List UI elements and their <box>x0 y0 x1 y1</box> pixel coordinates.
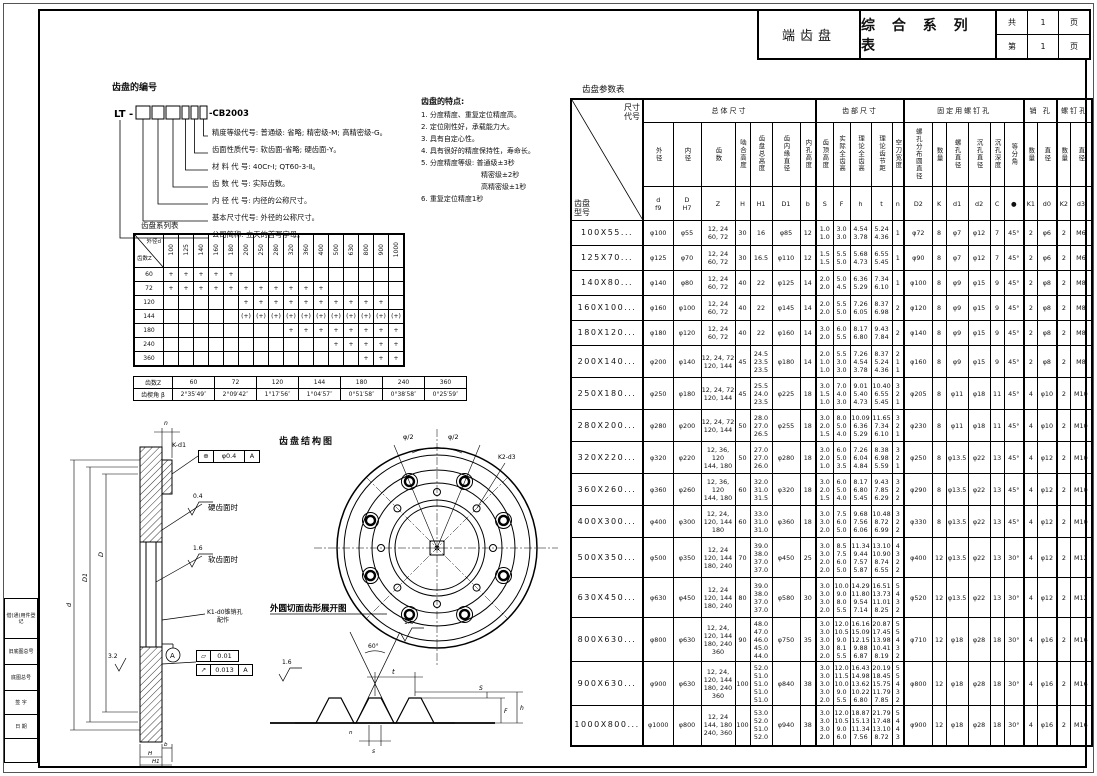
series-mark-cell <box>329 282 344 296</box>
param-value-cell: 3.0 1.5 1.0 <box>816 378 833 410</box>
angle-value-row: 齿楔角 β2°35′49″2°09′42″1°17′56″1°04′57″0°5… <box>134 389 467 401</box>
param-value-cell: 18 <box>800 474 816 506</box>
series-col-header: 125 <box>179 234 194 268</box>
param-value-cell: 2 <box>1057 662 1070 706</box>
param-model-cell: 250X180... <box>571 378 643 410</box>
param-value-cell: φ120 <box>904 296 932 321</box>
angle-col-value: 240 <box>383 377 425 389</box>
param-value-cell: 13 <box>990 578 1004 618</box>
param-value-cell: 16.5 <box>750 246 772 271</box>
param-group-header: 固定用螺钉孔 <box>904 99 1024 123</box>
series-row: 180++++++++ <box>134 324 404 338</box>
feature-line: 2. 定位刚性好，承载能力大。 <box>421 121 573 133</box>
series-row-header: 144 <box>134 310 164 324</box>
param-col-name: 外径 <box>643 123 673 187</box>
screw-hole-inner <box>366 516 375 525</box>
series-col-header: 320 <box>284 234 299 268</box>
param-row: 160X100...φ160φ10012, 24 60, 724022φ1451… <box>571 296 1092 321</box>
param-value-cell: 45° <box>1004 442 1024 474</box>
param-value-cell: 30° <box>1004 538 1024 578</box>
roughness-side-value: 3.2 <box>108 653 118 660</box>
param-value-cell: M16 <box>1070 662 1092 706</box>
param-value-cell: 8 <box>932 271 946 296</box>
hard-face-label: 硬齿面时 <box>208 502 238 512</box>
series-mark-cell <box>269 324 284 338</box>
param-value-cell: 13 <box>990 442 1004 474</box>
param-value-cell: 2 <box>892 321 904 346</box>
param-value-cell: M8 <box>1070 321 1092 346</box>
strip-row: 底图总号 <box>4 665 38 691</box>
flatness-frame: ▱ 0.01 <box>196 650 239 662</box>
series-mark-cell <box>314 268 329 282</box>
series-mark-cell: + <box>269 296 284 310</box>
series-mark-cell <box>299 352 314 367</box>
code-legend-line: 齿 数 代 号: 实际齿数。 <box>212 179 289 189</box>
param-value-cell: 14.29 11.80 9.54 7.14 <box>850 578 871 618</box>
param-group-header: 齿部尺寸 <box>816 99 904 123</box>
param-value-cell: φ180 <box>673 378 701 410</box>
param-value-cell: 2 <box>1057 296 1070 321</box>
param-table-block: 齿盘参数表 尺寸代号齿盘型号总体尺寸齿部尺寸固定用螺钉孔销 孔螺钉孔外径内径齿数… <box>570 83 1087 747</box>
param-value-cell: φ205 <box>904 378 932 410</box>
param-value-cell: 14 <box>800 271 816 296</box>
series-mark-cell: (+) <box>314 310 329 324</box>
param-value-cell: 9 <box>990 271 1004 296</box>
pages-total-row: 共1页 <box>997 11 1089 35</box>
dim-h-label: h <box>520 705 524 712</box>
series-mark-cell: (+) <box>284 310 299 324</box>
param-value-cell: 12, 24 60, 72 <box>701 246 735 271</box>
flatness-symbol: ▱ <box>196 650 211 662</box>
param-col-symbol: d f9 <box>643 187 673 221</box>
param-value-cell: φ8 <box>1037 271 1057 296</box>
series-mark-cell: + <box>194 282 209 296</box>
param-value-cell: 3 2 2 <box>892 474 904 506</box>
series-row: 144(+)(+)(+)(+)(+)(+)(+)(+)(+)(+)(+) <box>134 310 404 324</box>
param-value-cell: 5.24 4.36 <box>871 221 892 246</box>
param-value-cell: 80 <box>735 578 750 618</box>
param-value-cell: 38 <box>800 662 816 706</box>
param-value-cell: φ160 <box>643 296 673 321</box>
code-prefix: LT - <box>114 109 133 120</box>
param-value-cell: 13 <box>990 474 1004 506</box>
param-value-cell: 90 <box>735 618 750 662</box>
screw-hole-inner <box>499 571 508 580</box>
series-mark-cell <box>179 296 194 310</box>
param-value-cell: 1 <box>892 221 904 246</box>
param-value-cell: φ145 <box>772 296 800 321</box>
param-col-symbol: d0 <box>1037 187 1057 221</box>
series-mark-cell <box>164 352 179 367</box>
screw-hole-inner <box>499 516 508 525</box>
param-value-cell: 2 <box>1057 246 1070 271</box>
page-cell: 页 <box>1058 35 1089 58</box>
param-value-cell: 22 <box>750 296 772 321</box>
param-value-cell: 12, 36, 120 144, 180 <box>701 442 735 474</box>
param-row: 140X80...φ140φ8012, 24 60, 724022φ125142… <box>571 271 1092 296</box>
param-row: 250X180...φ250φ18012, 24, 72 120, 144452… <box>571 378 1092 410</box>
param-value-cell: M6 <box>1070 221 1092 246</box>
angle-value-cell: 1°17′56″ <box>257 389 299 401</box>
param-value-cell: 2.0 2.0 <box>816 271 833 296</box>
param-value-cell: 7.26 6.05 <box>850 296 871 321</box>
param-value-cell: 6.0 5.0 3.5 <box>833 442 850 474</box>
param-value-cell: 5.5 3.0 3.0 <box>833 346 850 378</box>
param-value-cell: 13 <box>990 538 1004 578</box>
param-value-cell: φ350 <box>673 538 701 578</box>
param-value-cell: 45° <box>1004 346 1024 378</box>
series-mark-cell <box>344 282 359 296</box>
param-value-cell: φ13.5 <box>946 506 968 538</box>
series-col-header: 800 <box>359 234 374 268</box>
angle-value-cell: 0°38′58″ <box>383 389 425 401</box>
param-row: 900X630...φ900φ63012, 24, 120, 144 180, … <box>571 662 1092 706</box>
param-value-cell: 2 <box>1057 706 1070 746</box>
runout-value: 0.013 <box>211 664 239 676</box>
param-value-cell: 9 <box>990 346 1004 378</box>
series-mark-cell: (+) <box>269 310 284 324</box>
series-mark-cell <box>194 296 209 310</box>
param-value-cell: 12, 24 60, 72 <box>701 296 735 321</box>
series-mark-cell <box>329 268 344 282</box>
param-value-cell: φ330 <box>904 506 932 538</box>
param-value-cell: 1.5 1.5 <box>816 246 833 271</box>
series-mark-cell: (+) <box>389 310 405 324</box>
param-value-cell: 13.10 10.90 8.74 6.55 <box>871 538 892 578</box>
param-value-cell: 8 <box>932 246 946 271</box>
param-value-cell: 12, 24, 120, 144 180 <box>701 506 735 538</box>
param-value-cell: 12.0 10.5 9.0 8.1 5.5 <box>833 618 850 662</box>
runout-symbol: ↗ <box>196 664 211 676</box>
param-value-cell: φ300 <box>673 506 701 538</box>
series-mark-cell <box>209 296 224 310</box>
param-value-cell: 22 <box>750 321 772 346</box>
series-col-header: 180 <box>224 234 239 268</box>
param-value-cell: 16.51 13.73 11.01 8.25 <box>871 578 892 618</box>
series-mark-cell: (+) <box>359 310 374 324</box>
param-value-cell: 4 <box>1024 506 1037 538</box>
param-col-symbol: K2 <box>1057 187 1070 221</box>
param-value-cell: M10 <box>1070 378 1092 410</box>
param-value-cell: φ140 <box>904 321 932 346</box>
param-value-cell: 4 3 2 2 <box>892 538 904 578</box>
param-value-cell: φ13.5 <box>946 442 968 474</box>
series-mark-cell: + <box>284 296 299 310</box>
param-value-cell: 20.19 18.45 15.75 11.79 7.85 <box>871 662 892 706</box>
param-value-cell: φ22 <box>968 474 990 506</box>
angle-col-value: 144 <box>299 377 341 389</box>
datum-a-label: A <box>170 652 175 660</box>
param-col-symbol: ● <box>1004 187 1024 221</box>
param-value-cell: 12 <box>800 221 816 246</box>
param-value-cell: 2 <box>1024 321 1037 346</box>
param-value-cell: 5 5 4 3 2 <box>892 662 904 706</box>
param-value-cell: φ255 <box>772 410 800 442</box>
param-value-cell: 16 <box>750 221 772 246</box>
param-value-cell: φ180 <box>643 321 673 346</box>
page-count-cell: 共1页 第1页 <box>997 11 1089 58</box>
param-value-cell: 30 <box>735 246 750 271</box>
series-mark-cell <box>329 352 344 367</box>
series-mark-cell: + <box>374 352 389 367</box>
param-value-cell: 4 <box>1024 706 1037 746</box>
series-mark-cell: + <box>164 282 179 296</box>
param-value-cell: 10.40 6.55 5.45 <box>871 378 892 410</box>
param-value-cell: φ16 <box>1037 662 1057 706</box>
param-value-cell: 8 <box>932 378 946 410</box>
series-row-header: 240 <box>134 338 164 352</box>
param-value-cell: φ360 <box>772 506 800 538</box>
series-mark-cell <box>314 338 329 352</box>
series-mark-cell: (+) <box>374 310 389 324</box>
param-value-cell: 8.17 6.80 <box>850 321 871 346</box>
param-value-cell: M6 <box>1070 246 1092 271</box>
param-value-cell: φ70 <box>673 246 701 271</box>
series-mark-cell: + <box>344 338 359 352</box>
doc-title: 综 合 系 列 表 <box>861 11 997 58</box>
series-mark-cell: + <box>284 324 299 338</box>
series-mark-cell <box>389 296 405 310</box>
param-value-cell: φ140 <box>673 346 701 378</box>
param-col-name: 数量 <box>932 123 946 187</box>
param-value-cell: 70 <box>735 538 750 578</box>
param-value-cell: 45° <box>1004 271 1024 296</box>
position-tolerance-value: φ0.4 <box>214 450 245 463</box>
param-col-symbol: d1 <box>946 187 968 221</box>
series-mark-cell: + <box>224 268 239 282</box>
param-value-cell: 3 2 1 <box>892 410 904 442</box>
series-mark-cell <box>209 352 224 367</box>
param-value-cell: 12 <box>932 578 946 618</box>
param-value-cell: 18 <box>800 442 816 474</box>
param-value-cell: 22 <box>750 271 772 296</box>
param-value-cell: 18.87 15.13 11.34 7.56 <box>850 706 871 746</box>
param-col-symbol: b <box>800 187 816 221</box>
series-col-header: 100 <box>164 234 179 268</box>
series-mark-cell <box>284 338 299 352</box>
runout-datum-ref: A <box>239 664 253 676</box>
param-value-cell: 8.17 6.80 5.45 <box>850 474 871 506</box>
half-angle-left: φ/2 <box>403 433 414 441</box>
param-value-cell: φ12 <box>1037 474 1057 506</box>
param-value-cell: 100 <box>735 706 750 746</box>
param-value-cell: 9.01 5.40 4.73 <box>850 378 871 410</box>
param-row: 320X220...φ320φ22012, 36, 120 144, 18050… <box>571 442 1092 474</box>
series-row-header: 360 <box>134 352 164 367</box>
series-mark-cell: + <box>329 296 344 310</box>
param-value-cell: φ125 <box>772 271 800 296</box>
series-corner-top: 外径d <box>147 238 162 247</box>
series-mark-cell <box>179 324 194 338</box>
param-col-name: 直径 <box>1070 123 1092 187</box>
page-current-row: 第1页 <box>997 35 1089 58</box>
param-value-cell: 2.0 1.0 1.0 <box>816 346 833 378</box>
series-mark-cell <box>284 268 299 282</box>
param-row: 280X200...φ280φ20012, 24, 72 120, 144502… <box>571 410 1092 442</box>
param-value-cell: φ200 <box>643 346 673 378</box>
angle-header-label: 齿数Z <box>134 377 173 389</box>
param-value-cell: 30 <box>800 578 816 618</box>
series-mark-cell <box>224 324 239 338</box>
angle-col-value: 72 <box>215 377 257 389</box>
series-mark-cell: + <box>359 338 374 352</box>
param-value-cell: 12, 24 60, 72 <box>701 271 735 296</box>
param-value-cell: 40 <box>735 321 750 346</box>
dim-d-label: d <box>65 602 73 607</box>
dim-H1-label: H1 <box>152 759 160 765</box>
param-value-cell: φ8 <box>1037 346 1057 378</box>
param-value-cell: φ85 <box>772 221 800 246</box>
param-value-cell: 2 1 1 <box>892 346 904 378</box>
param-value-cell: 6.0 5.5 <box>833 321 850 346</box>
param-value-cell: 21.79 17.48 13.10 8.72 <box>871 706 892 746</box>
param-value-cell: M12 <box>1070 578 1092 618</box>
flatness-value: 0.01 <box>211 650 239 662</box>
param-value-cell: 8 <box>932 296 946 321</box>
param-value-cell: 18 <box>800 410 816 442</box>
series-mark-cell <box>269 338 284 352</box>
param-value-cell: 12, 24 120, 144 180, 240 <box>701 578 735 618</box>
param-value-cell: φ6 <box>1037 221 1057 246</box>
param-value-cell: φ28 <box>968 662 990 706</box>
angle-col-value: 120 <box>257 377 299 389</box>
param-value-cell: 30° <box>1004 662 1024 706</box>
series-mark-cell <box>209 324 224 338</box>
param-value-cell: φ12 <box>1037 442 1057 474</box>
series-mark-cell: + <box>269 282 284 296</box>
param-value-cell: φ18 <box>946 618 968 662</box>
dim-D-label: D <box>97 552 105 557</box>
param-value-cell: 8.38 6.98 5.59 <box>871 442 892 474</box>
series-row-header: 120 <box>134 296 164 310</box>
param-value-cell: 8.37 6.98 <box>871 296 892 321</box>
param-col-name: 齿顶高度 <box>816 123 833 187</box>
page-cell: 第 <box>997 35 1027 58</box>
param-value-cell: 12, 24, 120, 144 180, 240 360 <box>701 662 735 706</box>
series-mark-cell: + <box>179 282 194 296</box>
margin-strip: 借(通)用件登记旧底图总号底图总号签 字日 期 <box>4 598 38 763</box>
series-mark-cell <box>224 296 239 310</box>
param-value-cell: 40 <box>735 296 750 321</box>
param-value-cell: φ110 <box>772 246 800 271</box>
series-mark-cell <box>224 310 239 324</box>
series-col-header: 630 <box>344 234 359 268</box>
series-mark-cell <box>359 282 374 296</box>
angle-table-block: 齿数Z6072120144180240360齿楔角 β2°35′49″2°09′… <box>133 376 467 401</box>
series-mark-cell: + <box>374 296 389 310</box>
strip-row: 日 期 <box>4 715 38 739</box>
param-value-cell: M12 <box>1070 538 1092 578</box>
param-col-name: 内孔高度 <box>800 123 816 187</box>
dim-s-label: s <box>372 748 375 755</box>
param-value-cell: φ320 <box>643 442 673 474</box>
param-value-cell: 2 <box>1057 578 1070 618</box>
param-value-cell: 4 <box>1024 474 1037 506</box>
features-heading: 齿盘的特点: <box>421 96 573 107</box>
param-value-cell: 7 <box>990 221 1004 246</box>
param-header-symbols: d f9D H7ZHH1D1bSFhtnD2Kd1d2C●K1d0K2d3 <box>571 187 1092 221</box>
param-value-cell: 7 <box>990 246 1004 271</box>
series-col-header: 280 <box>269 234 284 268</box>
param-value-cell: φ12 <box>1037 506 1057 538</box>
param-value-cell: φ360 <box>643 474 673 506</box>
param-value-cell: 12.0 10.5 9.0 6.0 <box>833 706 850 746</box>
series-mark-cell <box>179 352 194 367</box>
param-model-cell: 200X140... <box>571 346 643 378</box>
param-col-symbol: K1 <box>1024 187 1037 221</box>
param-value-cell: 39.0 38.0 37.0 37.0 <box>750 578 772 618</box>
series-row: 120++++++++++ <box>134 296 404 310</box>
series-mark-cell <box>179 310 194 324</box>
k-d1-label: K-d1 <box>172 441 186 449</box>
param-row: 400X300...φ400φ30012, 24, 120, 144 18060… <box>571 506 1092 538</box>
param-value-cell: 13 <box>990 506 1004 538</box>
dim-t-label: t <box>392 668 395 676</box>
develop-view-title: 外圆切面齿形展开图 <box>269 603 347 614</box>
param-col-name: 实际全齿高 <box>833 123 850 187</box>
param-value-cell: M8 <box>1070 296 1092 321</box>
strip-row: 签 字 <box>4 691 38 715</box>
series-corner-bottom: 齿数Z <box>137 255 152 264</box>
series-mark-cell <box>374 282 389 296</box>
screw-hole-note: K2-d3 <box>498 454 516 461</box>
param-col-symbol: C <box>990 187 1004 221</box>
param-value-cell: φ22 <box>968 578 990 618</box>
param-value-cell: 38 <box>800 706 816 746</box>
series-mark-cell: + <box>284 282 299 296</box>
series-mark-cell: + <box>389 352 405 367</box>
angle-col-value: 180 <box>341 377 383 389</box>
param-value-cell: 7.0 4.0 3.0 <box>833 378 850 410</box>
param-value-cell: φ28 <box>968 706 990 746</box>
angle-value-cell: 0°51′58″ <box>341 389 383 401</box>
param-value-cell: φ800 <box>643 618 673 662</box>
series-col-header: 200 <box>239 234 254 268</box>
param-value-cell: φ160 <box>772 321 800 346</box>
param-value-cell: φ22 <box>968 442 990 474</box>
series-col-header: 900 <box>374 234 389 268</box>
param-model-cell: 500X350... <box>571 538 643 578</box>
param-value-cell: φ10 <box>1037 410 1057 442</box>
series-mark-cell: + <box>374 324 389 338</box>
param-value-cell: 14 <box>800 296 816 321</box>
param-row: 630X450...φ630φ45012, 24 120, 144 180, 2… <box>571 578 1092 618</box>
position-datum-ref: A <box>245 450 260 463</box>
dim-S-label: S <box>479 685 483 692</box>
param-value-cell: φ400 <box>643 506 673 538</box>
param-value-cell: φ16 <box>1037 706 1057 746</box>
param-value-cell: 3.0 3.0 2.0 2.0 <box>816 538 833 578</box>
param-value-cell: φ55 <box>673 221 701 246</box>
series-col-header: 1000 <box>389 234 405 268</box>
param-value-cell: 18 <box>800 506 816 538</box>
param-value-cell: 12, 36, 120 144, 180 <box>701 474 735 506</box>
param-value-cell: 8 <box>932 442 946 474</box>
param-model-cell: 100X55... <box>571 221 643 246</box>
param-value-cell: 2 <box>1057 538 1070 578</box>
code-legend-line: 精度等级代号: 普通级: 省略; 精密级-M; 高精密级-G。 <box>212 128 387 138</box>
param-value-cell: 8 <box>932 410 946 442</box>
series-row-header: 72 <box>134 282 164 296</box>
series-mark-cell: + <box>179 268 194 282</box>
param-value-cell: φ280 <box>772 442 800 474</box>
dim-D1-label: D1 <box>81 573 89 582</box>
param-value-cell: 45° <box>1004 474 1024 506</box>
param-value-cell: 2 <box>1057 410 1070 442</box>
param-value-cell: 9.43 7.84 <box>871 321 892 346</box>
param-value-cell: φ280 <box>643 410 673 442</box>
param-value-cell: 12, 24, 72 120, 144 <box>701 346 735 378</box>
